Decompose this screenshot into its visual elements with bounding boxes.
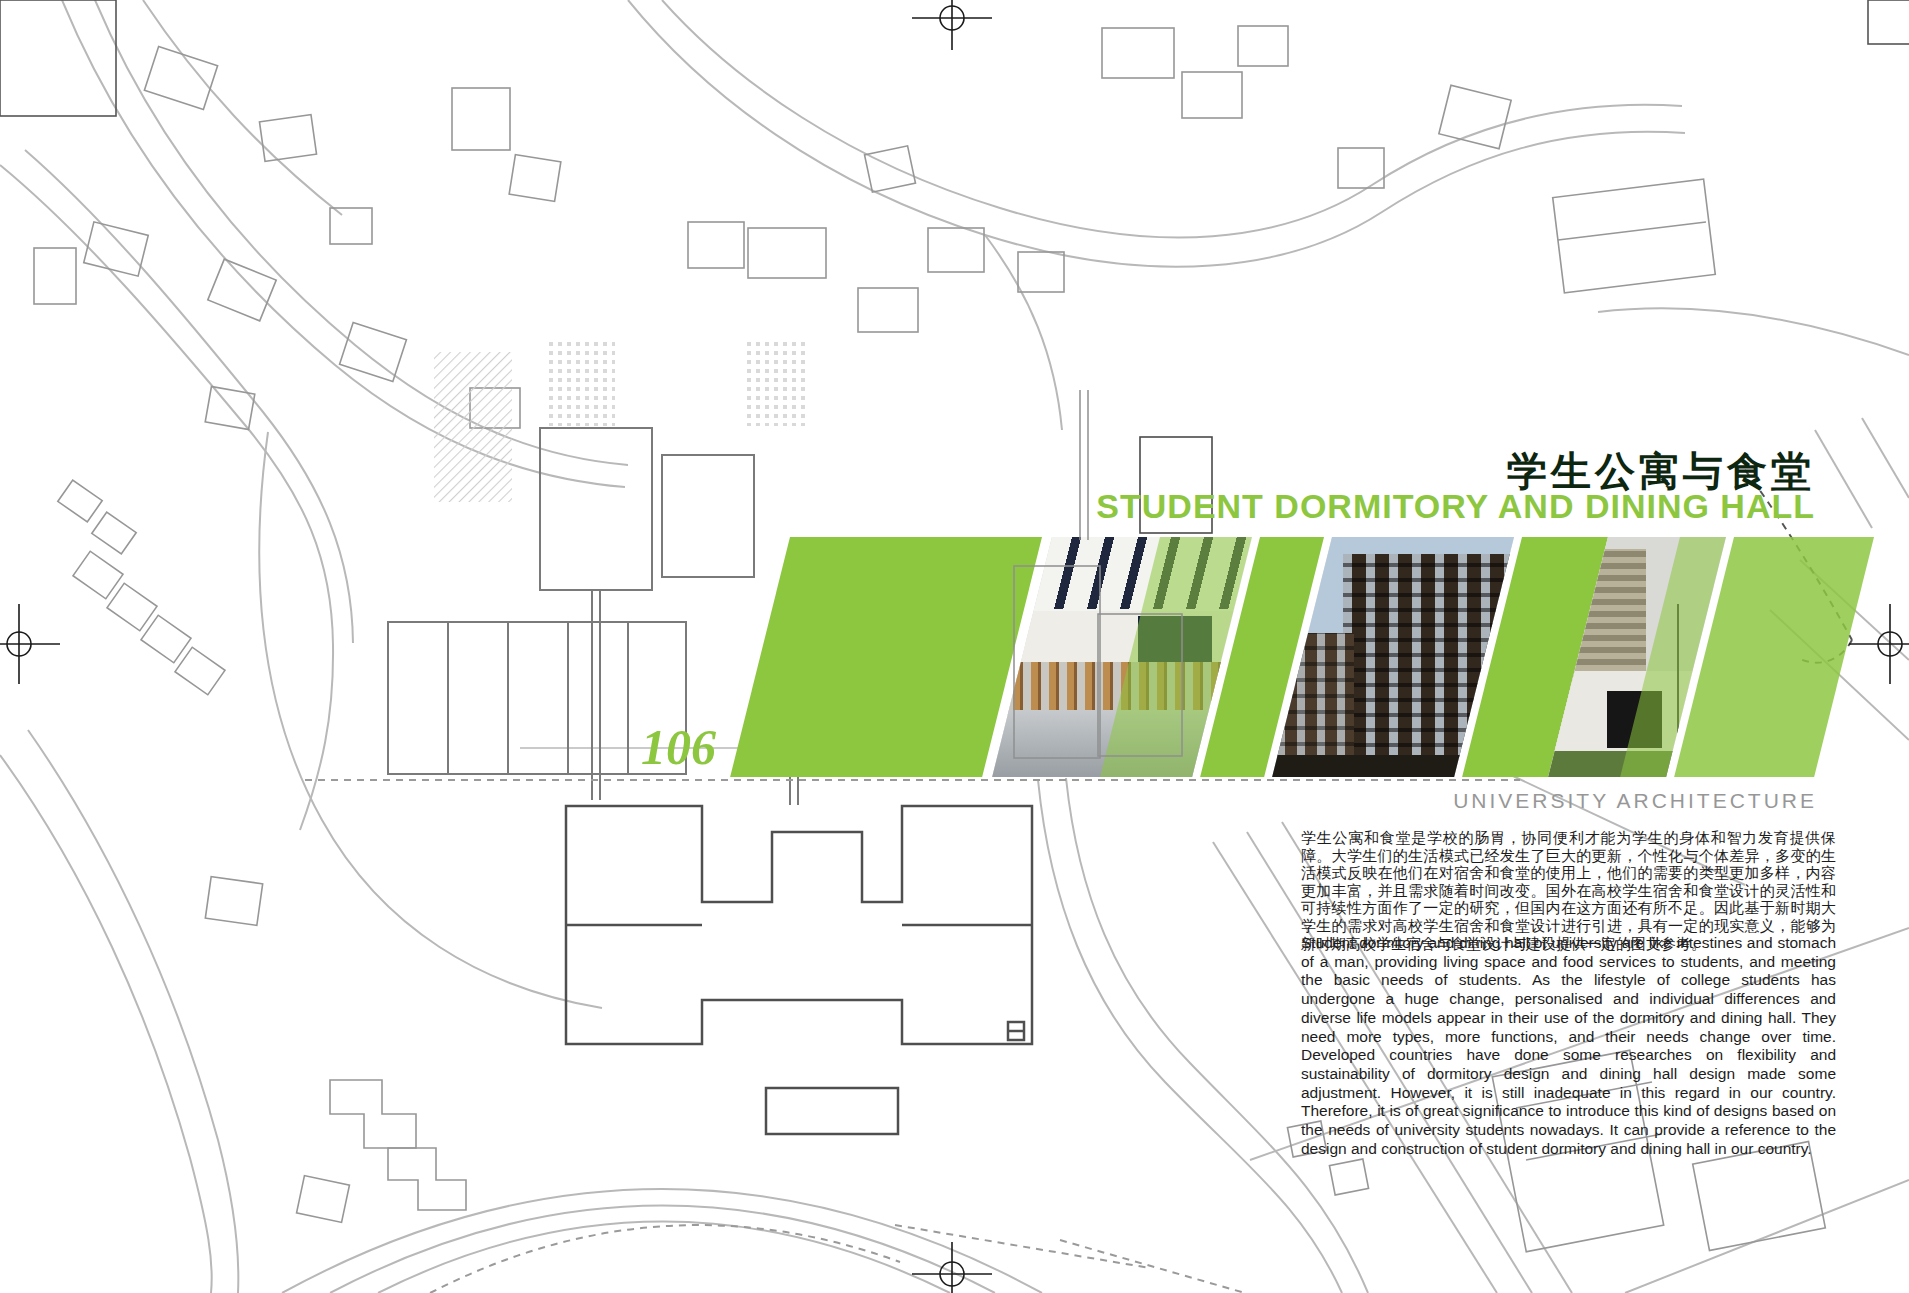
book-page: { "page": { "number": "106", "category_l… [0,0,1909,1293]
intro-paragraph-english: Student dormitory and dining hall of uni… [1301,934,1836,1158]
text-content: 学生公寓与食堂 STUDENT DORMITORY AND DINING HAL… [0,0,1909,1293]
category-label: UNIVERSITY ARCHITECTURE [1453,789,1817,813]
page-number: 106 [641,722,716,772]
page-title-english: STUDENT DORMITORY AND DINING HALL [1096,487,1815,526]
